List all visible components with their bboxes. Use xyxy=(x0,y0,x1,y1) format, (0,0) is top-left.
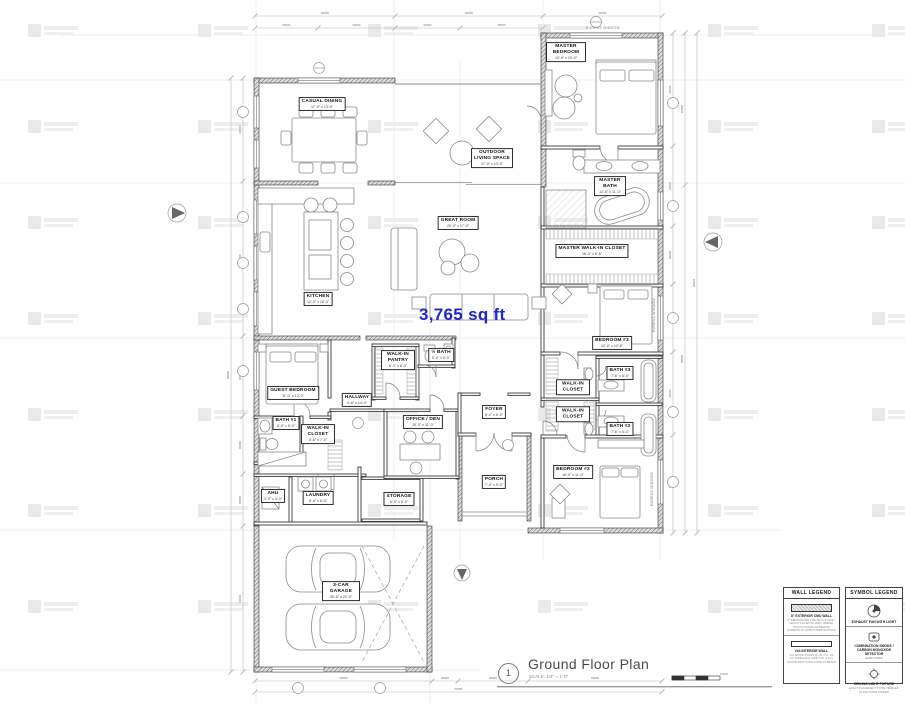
room-label-outdoor-living: OUTDOOR LIVING SPACE17'-0" x 13'-0" xyxy=(471,148,513,168)
room-label-wic-b: WALK-IN CLOSET xyxy=(556,406,590,422)
wall-legend-title: WALL LEGEND xyxy=(784,588,839,599)
symbol-legend-entry: CEILING LIGHT FIXTURE EXACT PLACEMENT TO… xyxy=(846,662,902,696)
room-dims: 8'-0" x 5'-0" xyxy=(275,424,296,428)
room-name: OUTDOOR LIVING SPACE xyxy=(474,150,510,161)
room-dims: 6'-0" x 5'-0" xyxy=(386,500,411,504)
room-label-walk-in-pantry: WALK-IN PANTRY6'-0" x 8'-0" xyxy=(381,350,415,370)
room-label-wic-a: WALK-IN CLOSET xyxy=(556,379,590,395)
room-dims: 16'-0" x 11'-0" xyxy=(556,473,590,477)
room-dims: 10'-0" x 11'-0" xyxy=(406,423,440,427)
room-name: KITCHEN xyxy=(307,294,330,299)
room-label-bedroom-3: BEDROOM #312'-0" x 12'-6" xyxy=(592,336,632,350)
room-name: WALK-IN CLOSET xyxy=(307,426,329,437)
room-name: BEDROOM #2 xyxy=(556,467,590,472)
symbol-legend-entry: COMBINATION SMOKE / CARBON MONOXIDE DETE… xyxy=(846,626,902,662)
room-dims: 17'-0" x 13'-0" xyxy=(302,105,343,109)
symbol-legend: SYMBOL LEGEND EXHAUST FAN WITH LIGHT COM… xyxy=(845,587,903,684)
room-label-casual-dining: CASUAL DINING17'-0" x 13'-0" xyxy=(299,97,346,111)
room-name: GUEST BEDROOM xyxy=(270,388,316,393)
room-label-guest-bedroom: GUEST BEDROOM11'-0" x 12'-0" xyxy=(267,386,319,400)
cmu-wall-swatch xyxy=(791,604,832,612)
room-dims: 16'-0" x 6'-6" xyxy=(558,252,625,256)
symbol-label: EXHAUST FAN WITH LIGHT xyxy=(849,620,899,624)
room-label-garage: 3-CAR GARAGE30'-0" x 22'-0" xyxy=(322,581,360,601)
wall-legend-entry: 2x4 INTERIOR WALL 2x4 WOOD STUDS @ 16" O… xyxy=(784,635,839,666)
section-marker xyxy=(704,233,722,251)
total-area-label: 3,765 sq ft xyxy=(419,305,505,325)
drawing-title: Ground Floor Plan xyxy=(528,656,649,672)
floor-plan-sheet: CASUAL DINING17'-0" x 13'-0"OUTDOOR LIVI… xyxy=(0,0,905,703)
room-name: CASUAL DINING xyxy=(302,99,343,104)
ceiling-light-icon xyxy=(868,668,880,680)
room-label-bath-1: BATH #18'-0" x 5'-0" xyxy=(272,416,299,430)
room-dims: 30'-0" x 22'-0" xyxy=(325,595,357,599)
room-name: WALK-IN PANTRY xyxy=(387,352,409,363)
room-label-kitchen: KITCHEN12'-0" x 18'-0" xyxy=(304,292,333,306)
room-dims: 17'-0" x 13'-0" xyxy=(474,162,510,166)
room-dims: 5'-6" x 7'-0" xyxy=(304,438,332,442)
room-name: 3-CAR GARAGE xyxy=(330,583,352,594)
room-dims: 8'-0" x 6'-0" xyxy=(485,413,503,417)
drawing-number-bubble: 1 xyxy=(498,663,519,684)
room-name: ½ BATH xyxy=(431,350,451,355)
title-underline xyxy=(497,686,772,687)
room-label-master-bath: MASTER BATH12'-6" x 11'-0" xyxy=(594,176,626,196)
room-name: OFFICE / DEN xyxy=(406,417,440,422)
room-dims: 5'-0" x 5'-0" xyxy=(431,356,451,360)
room-label-laundry: LAUNDRY8'-6" x 6'-0" xyxy=(303,491,334,505)
room-dims: 6'-0" x 8'-0" xyxy=(384,364,412,368)
wall-type-desc: 2x4 WOOD STUDS @ 16" O.C. W/ 1/2" GWB EA… xyxy=(787,654,836,664)
room-dims: 11'-0" x 12'-0" xyxy=(270,394,316,398)
drawing-scale: SCALE: 1/4" = 1'-0" xyxy=(529,674,568,679)
room-name: GREAT ROOM xyxy=(441,218,476,223)
wall-type-desc: 8" REINFORCED CMU BLOCK WALL, GROUT FILL… xyxy=(787,619,836,633)
room-dims: 7'-0" x 9'-0" xyxy=(485,483,503,487)
egress-window-note: EGRESS WINDOW xyxy=(586,26,620,30)
interior-wall-swatch xyxy=(791,641,832,647)
symbol-label: COMBINATION SMOKE / CARBON MONOXIDE DETE… xyxy=(849,644,899,656)
symbol-legend-title: SYMBOL LEGEND xyxy=(846,588,902,599)
room-dims: 12'-6" x 11'-0" xyxy=(597,190,623,194)
room-name: BATH #2 xyxy=(609,424,630,429)
room-name: MASTER WALK-IN CLOSET xyxy=(558,246,625,251)
room-label-ahu: AHU3'-0" x 5'-0" xyxy=(261,489,285,503)
symbol-legend-entry: EXHAUST FAN WITH LIGHT xyxy=(846,599,902,626)
room-name: AHU xyxy=(267,491,278,496)
room-label-porch: PORCH7'-0" x 9'-0" xyxy=(482,475,506,489)
section-marker xyxy=(168,204,186,222)
room-label-bedroom-2: BEDROOM #216'-0" x 11'-0" xyxy=(553,465,593,479)
symbol-desc: EXACT PLACEMENT TO BE VERIFIED IN FIELD … xyxy=(849,687,899,694)
room-label-office-den: OFFICE / DEN10'-0" x 11'-0" xyxy=(403,415,443,429)
room-dims: 13'-6" x 15'-0" xyxy=(549,56,583,60)
room-name: BATH #3 xyxy=(609,368,630,373)
smoke-detector-icon xyxy=(868,632,880,642)
room-label-master-wic: MASTER WALK-IN CLOSET16'-0" x 6'-6" xyxy=(555,244,628,258)
symbol-desc: HARD WIRED xyxy=(849,657,899,660)
room-dims: 3'-0" x 5'-0" xyxy=(264,497,282,501)
room-label-great-room: GREAT ROOM20'-0" x 17'-0" xyxy=(438,216,479,230)
room-name: HALLWAY xyxy=(345,395,369,400)
room-label-hallway: HALLWAY3'-6" x 14'-0" xyxy=(342,393,372,407)
wall-legend-entry: 8" EXTERIOR CMU WALL 8" REINFORCED CMU B… xyxy=(784,599,839,635)
room-label-bath-3: BATH #37'-6" x 5'-0" xyxy=(606,366,633,380)
room-dims: 7'-6" x 5'-0" xyxy=(609,430,630,434)
room-dims: 20'-0" x 17'-0" xyxy=(441,224,476,228)
room-name: PORCH xyxy=(485,477,503,482)
egress-window-note: EGRESS WINDOW xyxy=(650,472,654,506)
room-dims: 12'-0" x 12'-6" xyxy=(595,344,629,348)
room-name: MASTER BATH xyxy=(599,178,620,189)
room-dims: 3'-6" x 14'-0" xyxy=(345,401,369,405)
room-name: FOYER xyxy=(485,407,503,412)
room-name: STORAGE xyxy=(386,494,411,499)
room-name: WALK-IN CLOSET xyxy=(562,408,584,419)
wall-legend: WALL LEGEND 8" EXTERIOR CMU WALL 8" REIN… xyxy=(783,587,840,684)
exhaust-fan-icon xyxy=(867,604,881,618)
room-label-bath-2: BATH #27'-6" x 5'-0" xyxy=(606,422,633,436)
room-label-master-bedroom: MASTER BEDROOM13'-6" x 15'-0" xyxy=(546,42,586,62)
north-marker xyxy=(454,565,470,581)
room-name: WALK-IN CLOSET xyxy=(562,381,584,392)
room-label-foyer: FOYER8'-0" x 6'-0" xyxy=(482,405,506,419)
room-dims: 7'-6" x 5'-0" xyxy=(609,374,630,378)
room-name: LAUNDRY xyxy=(306,493,331,498)
room-name: BEDROOM #3 xyxy=(595,338,629,343)
room-label-storage: STORAGE6'-0" x 5'-0" xyxy=(383,492,414,506)
scale-bar xyxy=(672,674,728,680)
room-dims: 12'-0" x 18'-0" xyxy=(307,300,330,304)
room-dims: 8'-6" x 6'-0" xyxy=(306,499,331,503)
room-name: BATH #1 xyxy=(275,418,296,423)
egress-window-note: EGRESS WINDOW xyxy=(652,298,656,332)
room-label-wic-guest: WALK-IN CLOSET5'-6" x 7'-0" xyxy=(301,424,335,444)
room-name: MASTER BEDROOM xyxy=(553,44,579,55)
room-label-half-bath: ½ BATH5'-0" x 5'-0" xyxy=(428,348,454,362)
